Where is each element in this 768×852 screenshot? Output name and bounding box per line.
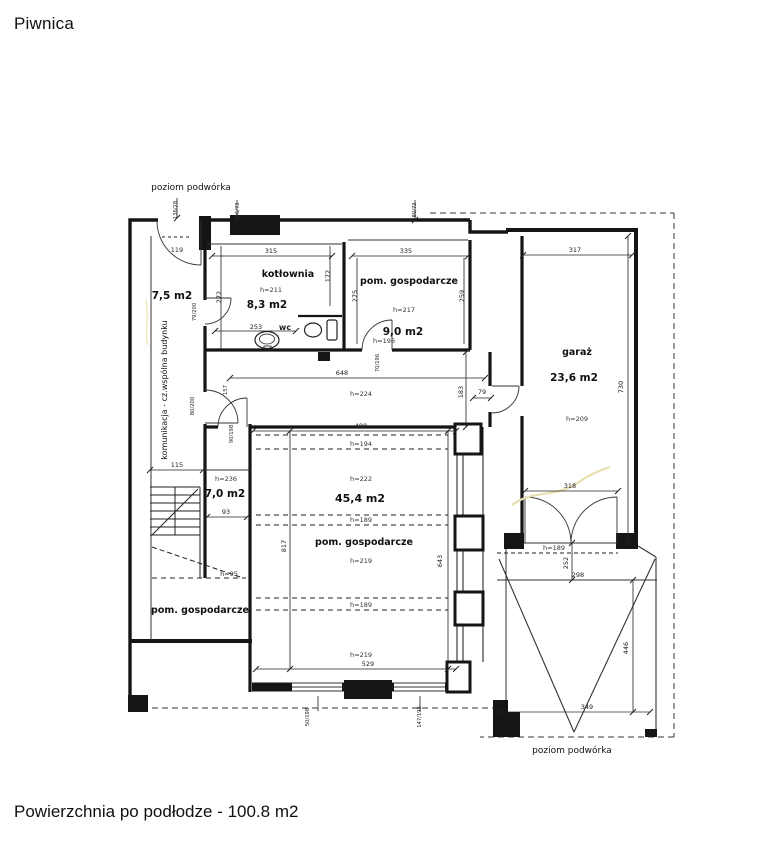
dim-door-kotlownia: 79/200 [192, 303, 198, 321]
dim-183: 183 [457, 386, 465, 398]
garaz-name: garaż [562, 347, 592, 358]
corridor-height: h=224 [350, 390, 372, 398]
gospodarcze9-height: h=217 [393, 306, 415, 314]
dim-349: 349 [581, 703, 593, 711]
garage-gate-right-arc [571, 497, 617, 543]
dim-730: 730 [617, 381, 625, 393]
dim-488: 488 [355, 422, 367, 430]
bigroom-h219a: h=219 [350, 557, 372, 565]
bigroom-area: 45,4 m2 [335, 492, 385, 505]
washbasin-inner [260, 334, 275, 344]
gospodarczeBL-name: pom. gospodarcze [151, 605, 249, 616]
dim-172: 172 [324, 270, 332, 282]
garage-door-height: h=189 [543, 544, 565, 552]
dim-298: 298 [572, 571, 584, 579]
gospodarcze9-name: pom. gospodarcze [360, 276, 458, 287]
corridor-door-arc [205, 390, 238, 423]
dim-window-1: 50/198 [305, 708, 311, 726]
wall-pier-bottom [344, 680, 392, 699]
dim-529: 529 [362, 660, 374, 668]
dim-93: 93 [222, 508, 230, 516]
garage-door-jamb-left [504, 533, 524, 549]
stair-treads [150, 487, 200, 578]
toilet-tank-icon [327, 320, 337, 340]
dim-643: 643 [436, 555, 444, 567]
kotlownia-name: kotłownia [262, 269, 314, 280]
komunikacja-label: komunikacja - cz.wspólna budynku [159, 320, 169, 459]
dim-259: 259 [458, 290, 466, 302]
floor-plan-drawing: poziom podwórka poziom podwórka 7,5 m2 k… [0, 0, 768, 852]
kotlownia-height: h=211 [260, 286, 282, 294]
komunikacja-area: 7,5 m2 [152, 290, 193, 302]
kotlownia-area: 8,3 m2 [247, 299, 288, 311]
dim-317: 317 [569, 246, 581, 254]
entry-door-arc [157, 221, 201, 265]
wall-pier-kotlownia [318, 352, 330, 361]
plan-labels: poziom podwórka poziom podwórka 7,5 m2 k… [151, 182, 630, 756]
dim-817: 817 [280, 540, 288, 552]
walls [128, 215, 638, 712]
pokoj70-height: h=236 [215, 475, 237, 483]
wc-label: wc [279, 323, 291, 332]
dim-window-2: 147/198 [417, 706, 423, 728]
gas-line-garage [512, 467, 610, 505]
dim-top-window-2: 80/73 [412, 203, 418, 218]
bigroom-h222: h=222 [350, 475, 372, 483]
dim-446: 446 [622, 642, 630, 654]
dim-315: 315 [265, 247, 277, 255]
pier-3 [455, 592, 483, 625]
floor-plan-page: Piwnica [0, 0, 768, 852]
garage-gate-left-arc [525, 497, 571, 543]
dim-318: 318 [564, 482, 576, 490]
garage-door-jamb-right [616, 533, 638, 549]
chimney-piers [447, 424, 483, 692]
toilet-bowl-icon [305, 323, 322, 337]
wall-block-bottomleft [128, 695, 148, 712]
dim-648: 648 [336, 369, 348, 377]
dim-79: 79 [478, 388, 486, 396]
dim-119: 119 [171, 246, 183, 254]
dim-door9-size: 70/196 [375, 354, 381, 372]
bigroom-h189b: h=189 [350, 601, 372, 609]
dim-252: 252 [562, 557, 570, 569]
pier-2 [455, 516, 483, 550]
garaz-height: h=209 [566, 415, 588, 423]
floor-area-summary: Powierzchnia po podłodze - 100.8 m2 [14, 802, 298, 822]
stairs [150, 487, 243, 578]
wc-fixtures [255, 320, 337, 351]
garaz-area: 23,6 m2 [550, 372, 598, 384]
gospodarczeBL-height: h=95 [220, 570, 238, 578]
ramp-step [493, 700, 520, 737]
dim-157: 157 [223, 385, 229, 395]
yard-level-top-label: poziom podwórka [151, 182, 231, 193]
garage-side-door-arc [492, 386, 519, 413]
dim-door-piwnica: 90/198 [229, 425, 235, 443]
dim-335: 335 [400, 247, 412, 255]
dim-entry-window: 136/28 [173, 201, 179, 219]
dim-275: 275 [351, 290, 359, 302]
bigroom-h194: h=194 [350, 440, 372, 448]
pokoj70-area: 7,0 m2 [205, 488, 246, 500]
ramp-corner-block [645, 729, 657, 737]
bigroom-name: pom. gospodarcze [315, 537, 413, 548]
dim-door9-height: h=196 [373, 337, 395, 345]
dim-top-window-1: 96/73 [235, 203, 241, 218]
dim-272: 272 [215, 291, 223, 303]
bigroom-h219b: h=219 [350, 651, 372, 659]
gas-line-left [146, 300, 148, 345]
ceiling-height-dashes [152, 435, 448, 610]
yard-level-bottom-label: poziom podwórka [532, 745, 612, 756]
dim-door-korytarz: 80/200 [190, 397, 196, 415]
dim-253: 253 [250, 323, 262, 331]
bigroom-h189a: h=189 [350, 516, 372, 524]
dim-115: 115 [171, 461, 183, 469]
